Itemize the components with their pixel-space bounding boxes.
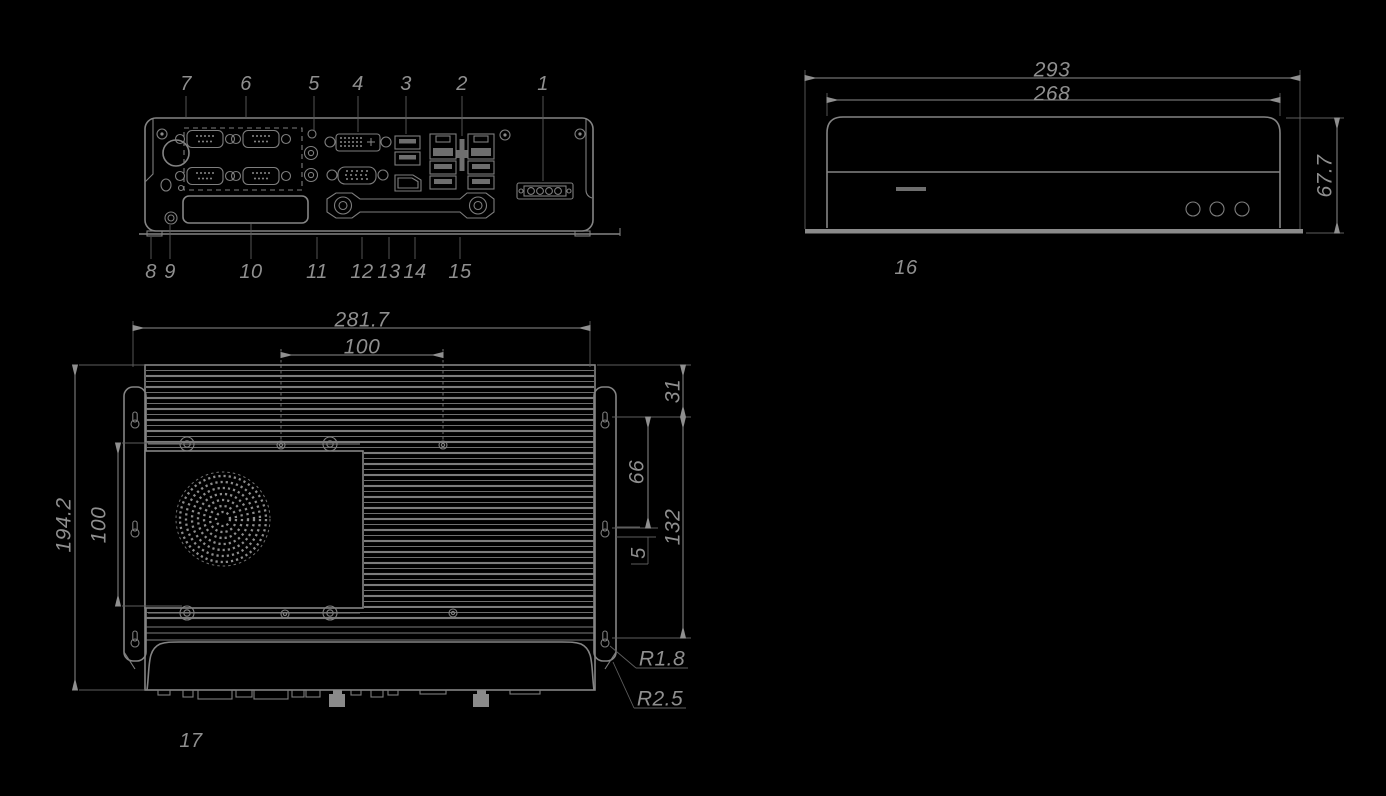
fan-cover-plate xyxy=(145,451,363,608)
top-dim-overall-width: 281.7 xyxy=(333,309,390,332)
callout-17: 17 xyxy=(179,730,203,752)
top-dim-keyhole-slot: 5 xyxy=(628,547,650,559)
top-dim-overall-depth: 194.2 xyxy=(53,497,76,552)
top-dim-hole-spacing-y: 100 xyxy=(88,507,111,544)
dc-terminal-block xyxy=(517,183,573,199)
drawing-svg: 7 6 5 4 3 2 1 8 9 10 11 12 13 14 15 293 … xyxy=(0,0,1386,796)
callout-3: 3 xyxy=(400,73,412,95)
power-jack xyxy=(163,140,189,166)
power-led xyxy=(179,186,184,191)
top-dim-flange-offset: 31 xyxy=(662,379,685,403)
side-dim-overall-width: 293 xyxy=(1033,59,1071,82)
callout-13: 13 xyxy=(377,261,400,283)
callout-14: 14 xyxy=(403,261,426,283)
top-dim-keyhole-gap: 66 xyxy=(626,460,649,484)
displayport xyxy=(395,175,421,191)
top-view: 281.7 100 194.2 100 31 66 132 5 xyxy=(53,309,692,753)
side-dim-height: 67.7 xyxy=(1314,154,1337,198)
side-view: 293 268 67.7 16 xyxy=(805,59,1344,280)
front-chassis-outline xyxy=(145,118,593,231)
callout-leaders-bottom xyxy=(151,224,460,259)
heatsink-fins-right xyxy=(364,451,594,608)
bottom-connector-ticks xyxy=(158,690,540,707)
tower-shield xyxy=(457,139,468,171)
side-dim-body-width: 268 xyxy=(1033,83,1071,106)
antenna-stud-left xyxy=(329,694,345,707)
antenna-stud-right xyxy=(473,694,489,707)
callout-16: 16 xyxy=(894,257,918,279)
callout-8: 8 xyxy=(145,261,157,283)
callout-6: 6 xyxy=(240,73,252,95)
front-bezel-curve xyxy=(147,642,594,690)
dvi-port xyxy=(325,134,391,151)
side-base-plate xyxy=(805,229,1303,234)
side-button-2 xyxy=(1210,202,1224,216)
front-left-fold-line xyxy=(145,119,153,182)
top-dim-radius-corner: R2.5 xyxy=(637,688,683,711)
callout-1: 1 xyxy=(537,73,549,95)
front-panel-view: 7 6 5 4 3 2 1 8 9 10 11 12 13 14 15 xyxy=(139,73,620,283)
side-button-3 xyxy=(1235,202,1249,216)
callout-7: 7 xyxy=(180,73,192,95)
callout-9: 9 xyxy=(164,261,176,283)
vga-port xyxy=(327,167,388,184)
usb2-ports xyxy=(395,136,420,165)
lan-usb-tower-right xyxy=(468,134,494,189)
technical-drawing-canvas: 7 6 5 4 3 2 1 8 9 10 11 12 13 14 15 293 … xyxy=(0,0,1386,796)
top-dim-keyhole-span: 132 xyxy=(662,509,685,546)
front-right-fold-line xyxy=(586,119,592,198)
expansion-slot xyxy=(183,196,308,223)
heatsink-fins-upper xyxy=(146,367,594,449)
audio-jacks xyxy=(305,130,318,182)
lan-usb-tower-left xyxy=(430,134,456,189)
serial-port-db9 xyxy=(176,131,291,185)
callout-2: 2 xyxy=(455,73,468,95)
callout-10: 10 xyxy=(239,261,262,283)
callout-4: 4 xyxy=(352,73,364,95)
power-button xyxy=(161,179,171,191)
callout-11: 11 xyxy=(306,261,328,283)
top-dim-hole-spacing-x: 100 xyxy=(344,336,381,359)
antenna-bracket xyxy=(327,193,494,218)
side-button-1 xyxy=(1186,202,1200,216)
callout-15: 15 xyxy=(448,261,472,283)
callout-5: 5 xyxy=(308,73,320,95)
top-dim-radius-keyhole: R1.8 xyxy=(639,648,685,671)
side-vent-slot xyxy=(896,187,926,191)
callout-12: 12 xyxy=(350,261,373,283)
